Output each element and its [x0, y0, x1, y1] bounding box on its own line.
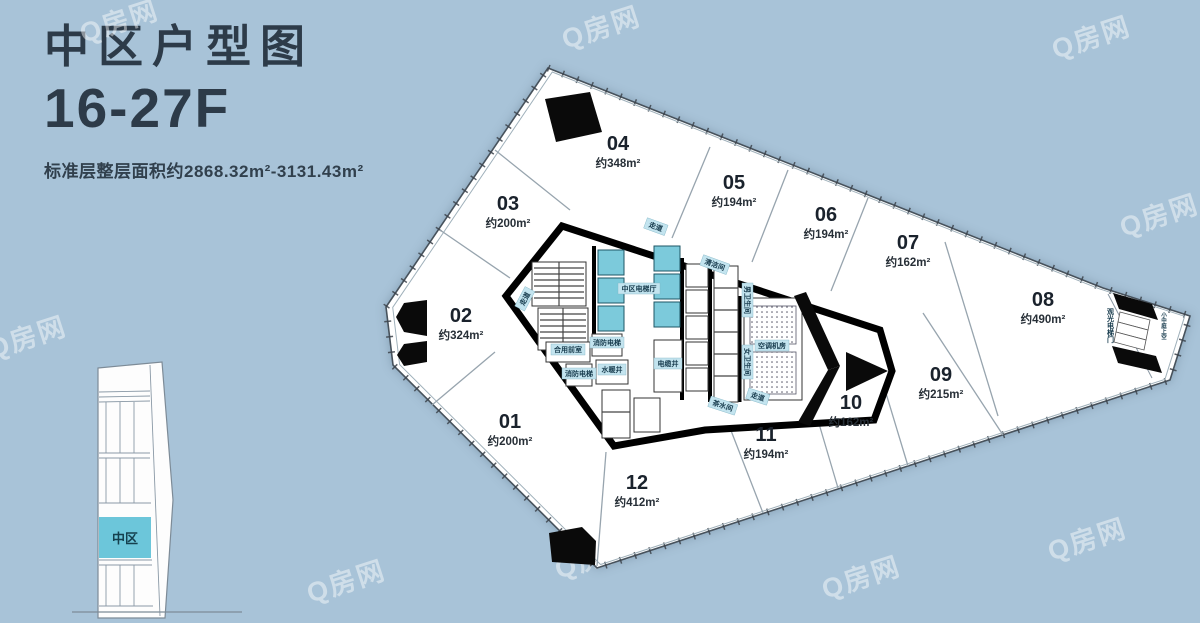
svg-text:男卫生间: 男卫生间	[743, 286, 752, 314]
toilet-block	[714, 266, 738, 402]
svg-text:约200m²: 约200m²	[486, 216, 531, 230]
svg-text:02: 02	[450, 305, 472, 327]
svg-text:水暖井: 水暖井	[602, 365, 623, 374]
svg-text:约162m²: 约162m²	[886, 255, 931, 269]
svg-text:12: 12	[626, 472, 648, 494]
room-label: 空调机房	[755, 340, 789, 351]
svg-text:10: 10	[840, 392, 862, 414]
elevator-bank-secondary	[686, 264, 708, 391]
atrium-void-label: 小中庭上空	[1160, 311, 1167, 341]
svg-text:06: 06	[815, 204, 837, 226]
room-label: 男卫生间	[742, 283, 753, 317]
svg-text:约490m²: 约490m²	[1021, 312, 1066, 326]
svg-text:04: 04	[607, 133, 630, 155]
svg-text:约194m²: 约194m²	[712, 195, 757, 209]
elevator-car	[654, 302, 680, 327]
elevator-car	[598, 306, 624, 331]
room-label: 中区电梯厅	[618, 283, 660, 294]
svg-text:消防电梯: 消防电梯	[593, 338, 621, 347]
svg-text:约348m²: 约348m²	[596, 156, 641, 170]
svg-text:约215m²: 约215m²	[919, 387, 964, 401]
room-label: 女卫生间	[742, 345, 753, 379]
room-label: 水暖井	[598, 364, 626, 375]
room-label: 消防电梯	[562, 368, 596, 379]
svg-text:约194m²: 约194m²	[804, 227, 849, 241]
svg-text:中区电梯厅: 中区电梯厅	[622, 284, 657, 293]
svg-text:09: 09	[930, 364, 952, 386]
service-room	[634, 398, 660, 432]
svg-text:电缆井: 电缆井	[658, 359, 679, 368]
svg-text:01: 01	[499, 411, 521, 433]
room-label: 电缆井	[654, 358, 682, 369]
svg-text:08: 08	[1032, 289, 1054, 311]
building-elevation: 中区	[70, 358, 250, 623]
elevator-car	[598, 250, 624, 275]
svg-text:03: 03	[497, 193, 519, 215]
svg-text:女卫生间: 女卫生间	[743, 348, 752, 376]
svg-text:消防电梯: 消防电梯	[565, 369, 593, 378]
svg-text:07: 07	[897, 232, 919, 254]
service-room	[602, 390, 630, 438]
middle-zone-label: 中区	[112, 531, 138, 546]
svg-text:11: 11	[755, 424, 776, 446]
svg-text:05: 05	[723, 172, 745, 194]
elevator-car	[654, 246, 680, 271]
svg-text:约162m²: 约162m²	[829, 415, 874, 429]
room-label: 消防电梯	[590, 337, 624, 348]
room-label: 合用前室	[551, 344, 585, 355]
svg-text:空调机房: 空调机房	[758, 341, 786, 350]
svg-text:约200m²: 约200m²	[488, 434, 533, 448]
stairwell	[532, 262, 586, 306]
svg-text:约324m²: 约324m²	[439, 328, 484, 342]
svg-text:约194m²: 约194m²	[744, 447, 789, 461]
page: 中区户型图 16-27F 标准层整层面积约2868.32m²-3131.43m²…	[0, 0, 1200, 623]
svg-text:约412m²: 约412m²	[615, 495, 660, 509]
svg-text:合用前室: 合用前室	[553, 345, 582, 354]
